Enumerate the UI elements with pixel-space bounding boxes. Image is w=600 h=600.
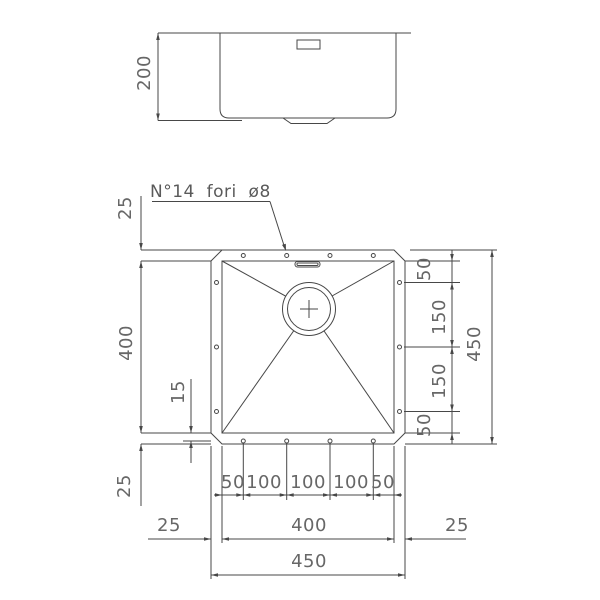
- sink-technical-drawing: 200 N°14 fori ø8 25 400 15 25 50 150 150…: [0, 0, 600, 600]
- side-view: [156, 33, 411, 124]
- bottom-hole-seg3-dim-label: 100: [290, 474, 326, 492]
- holes-note-leader: [152, 202, 286, 252]
- bottom-bowl-width-dim-label: 400: [291, 517, 327, 535]
- right-seg-mid1-dim-label: 150: [431, 299, 449, 335]
- right-overall-dim-label: 450: [466, 326, 484, 362]
- bottom-hole-seg5-dim-label: 50: [371, 474, 395, 492]
- left-bowl-height-dim-label: 400: [118, 325, 136, 361]
- holes-count-note: N°14 fori ø8: [150, 184, 271, 201]
- right-seg-bottom-dim-label: 50: [416, 413, 434, 437]
- drawing-linework: [0, 0, 600, 600]
- side-drain: [283, 118, 335, 124]
- left-dimensions: [139, 196, 222, 506]
- bottom-hole-seg1-dim-label: 50: [221, 474, 245, 492]
- fixing-holes: [215, 254, 402, 444]
- left-rim-top-dim-label: 25: [117, 196, 135, 220]
- bottom-hole-seg2-dim-label: 100: [246, 474, 282, 492]
- bottom-rim-left-dim-label: 25: [157, 517, 181, 535]
- bottom-rim-right-dim-label: 25: [445, 517, 469, 535]
- bottom-overall-dim-label: 450: [291, 553, 327, 571]
- plan-outer-flange: [211, 250, 405, 444]
- plan-view: [211, 250, 405, 444]
- side-height-dim-label: 200: [136, 55, 154, 91]
- left-rim-bottom-dim-label: 25: [116, 474, 134, 498]
- plan-overflow-slot: [295, 262, 320, 268]
- bottom-hole-seg4-dim-label: 100: [333, 474, 369, 492]
- side-overflow-box: [297, 40, 320, 49]
- right-seg-mid2-dim-label: 150: [431, 363, 449, 399]
- left-hole-inset-dim-label: 15: [170, 380, 188, 404]
- right-seg-top-dim-label: 50: [416, 257, 434, 281]
